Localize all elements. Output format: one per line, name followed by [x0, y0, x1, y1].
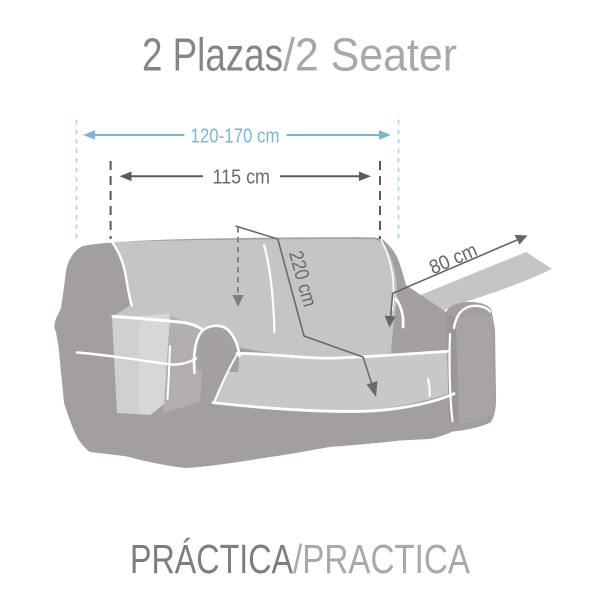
svg-text:/2 Seater: /2 Seater [283, 29, 457, 81]
svg-text:80 cm: 80 cm [426, 239, 481, 279]
svg-text:2 Plazas: 2 Plazas [142, 29, 283, 81]
svg-text:120-170 cm: 120-170 cm [191, 125, 280, 147]
svg-text:PRÁCTICA: PRÁCTICA [130, 536, 294, 582]
svg-text:/PRACTICA: /PRACTICA [293, 536, 471, 582]
svg-text:115 cm: 115 cm [213, 167, 271, 189]
